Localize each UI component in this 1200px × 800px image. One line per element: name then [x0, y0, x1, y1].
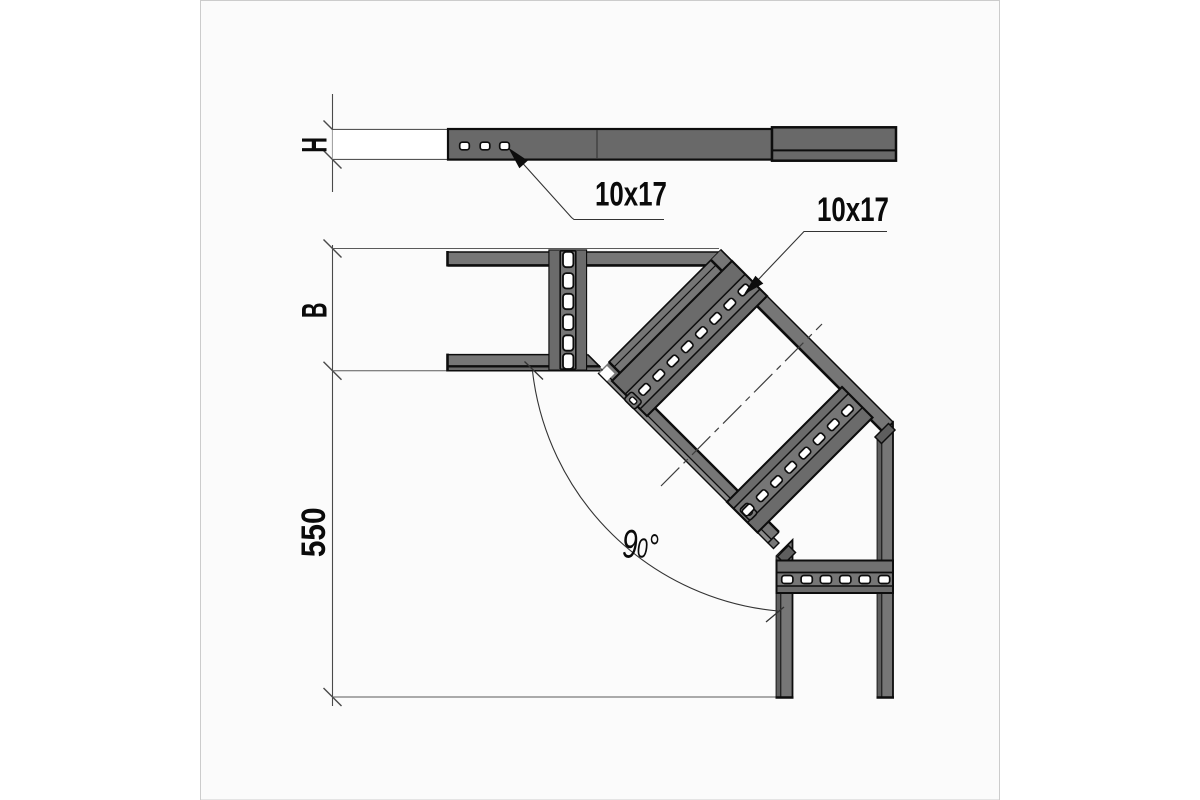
svg-text:550: 550 [294, 507, 332, 557]
svg-text:B: B [296, 302, 334, 318]
svg-text:H: H [296, 137, 334, 153]
svg-text:10x17: 10x17 [595, 175, 667, 213]
svg-text:10x17: 10x17 [817, 190, 889, 228]
